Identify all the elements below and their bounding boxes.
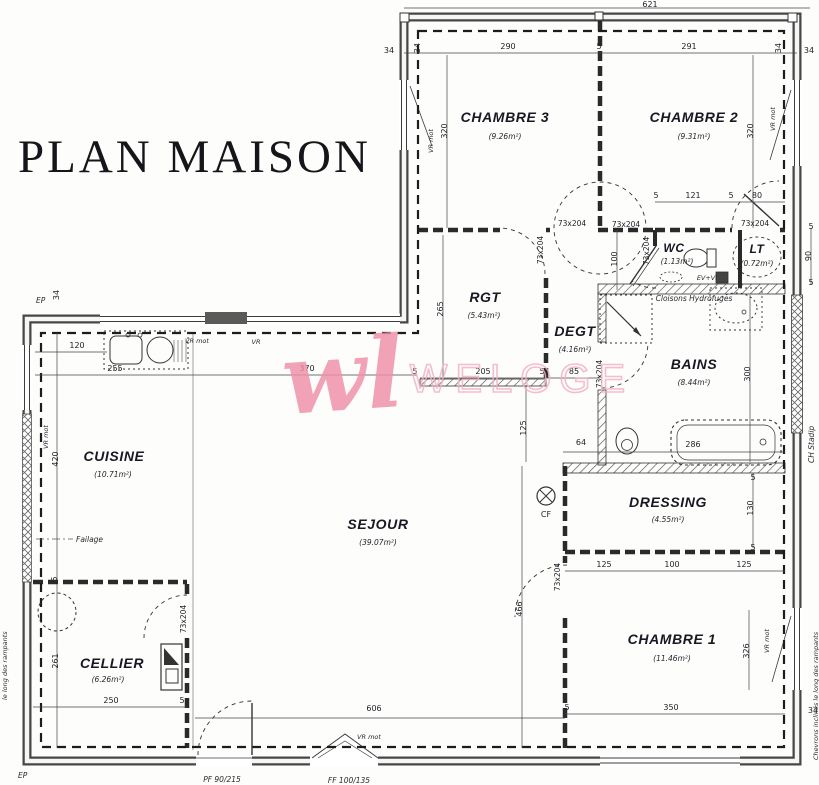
room-area: (10.71m²) [94,470,132,479]
dim-label: 5 [564,703,569,712]
vr-mot-label: VR mot [763,629,771,653]
dim-label: 5 [808,278,813,287]
door-size-label: 73x204 [558,219,587,228]
vr-label: VR [252,338,261,346]
ff-window-label: FF 100/135 [328,776,370,785]
dim-label: 5 [750,543,755,552]
exterior-walls [27,17,797,761]
dim-label: 5 [653,191,658,200]
room-label: DEGT [554,323,596,339]
floor-plan-page: PLAN MAISON [0,0,819,785]
cf-symbol [537,487,555,505]
dim-label: 320 [440,123,449,138]
room-area: (39.07m²) [359,538,397,547]
dim-label: 5 [596,42,601,51]
room-label: CELLIER [80,655,144,671]
dim-label: 5 [750,473,755,482]
door-size-label: 73x204 [179,605,188,634]
dim-label: 261 [51,653,60,668]
room-label: BAINS [671,356,718,372]
door-size-label: 73x204 [595,360,604,389]
door-size-label: 73x204 [553,563,562,592]
dim-label: 121 [685,191,700,200]
dim-label: 90 [804,251,813,261]
dim-label: 250 [103,696,118,705]
dim-label: 350 [663,703,678,712]
dim-label: 5 [179,696,184,705]
evvi-label: EV+VI [697,274,717,282]
dim-label: 85 [569,367,579,376]
dim-label: 34 [413,43,422,53]
dim-label: 291 [681,42,696,51]
dim-label: 300 [743,366,752,381]
dim-label: 34 [384,46,394,55]
pf-door-label: PF 90/215 [203,775,241,784]
ep-label: EP [36,296,46,305]
room-label: CHAMBRE 3 [461,109,550,125]
dim-label: 205 [475,367,490,376]
dim-label: 5 [539,367,544,376]
room-labels: CHAMBRE 3 (9.26m²) CHAMBRE 2 (9.31m²) WC… [80,109,774,684]
vr-mot-label: VR mot [427,129,435,153]
dim-label: 34 [52,290,61,300]
floor-plan-drawing: CHAMBRE 3 (9.26m²) CHAMBRE 2 (9.31m²) WC… [0,0,819,785]
dim-label: 5 [728,191,733,200]
dim-label: 420 [51,451,60,466]
dim-label: 125 [596,560,611,569]
room-label: CHAMBRE 1 [628,631,717,647]
dim-label: 100 [610,251,619,266]
ch-stadip-label: CH Stadip [807,426,816,463]
dim-label: 5 [808,222,813,231]
vr-mot-label: VR mot [357,733,381,741]
room-area: (0.72m²) [741,259,774,268]
room-label: LT [750,242,766,256]
dim-label: 100 [664,560,679,569]
dim-label: 64 [576,438,586,447]
bathroom-fixtures [600,288,781,465]
room-label: WC [663,241,684,255]
room-area: (1.13m²) [661,257,694,266]
dim-label: 5 [50,576,59,581]
room-label: SEJOUR [347,516,408,532]
dim-label: 125 [736,560,751,569]
dim-label: 34 [804,46,814,55]
room-area: (6.26m²) [92,675,125,684]
dim-label: 80 [752,191,762,200]
dim-label: 466 [515,601,524,616]
room-area: (4.16m²) [559,345,592,354]
dim-label: 286 [685,440,700,449]
room-area: (4.55m²) [652,515,685,524]
dim-label: 265 [436,301,445,316]
cf-label: CF [541,510,552,519]
vr-mot-label: VR mot [42,425,50,449]
cloisons-hydrofuges-label: Cloisons Hydrofuges [656,294,733,303]
chevrons-note: Chevrons inclinés le long des rampants [812,631,819,760]
room-area: (5.43m²) [468,311,501,320]
ep-label: EP [18,771,28,780]
rampants-note-left: le long des rampants [1,631,9,700]
room-area: (11.46m²) [653,654,691,663]
room-area: (9.26m²) [489,132,522,141]
dim-label: 606 [366,704,381,713]
room-area: (9.31m²) [678,132,711,141]
room-label: RGT [469,289,501,305]
dim-label: 130 [746,500,755,515]
door-size-label: 73x204 [612,220,641,229]
dim-label: 370 [299,364,314,373]
room-label: CHAMBRE 2 [650,109,739,125]
vr-mot-label: VR mot [769,107,777,131]
dim-label: 34 [774,43,783,53]
dim-label: 621 [642,0,657,9]
dim-label: 125 [519,420,528,435]
dim-label: 320 [746,123,755,138]
dim-label: 326 [742,643,751,658]
dim-label: 120 [69,341,84,350]
door-size-label: 73x204 [642,237,651,266]
dim-label: 5 [412,367,417,376]
faitage-label: Failage [76,535,103,544]
dim-label: 255 [107,364,122,373]
room-label: CUISINE [84,448,145,464]
room-area: (8.44m²) [678,378,711,387]
vr-mot-label: VR mot [185,337,209,345]
door-size-label: 73x204 [741,219,770,228]
room-label: DRESSING [629,494,707,510]
door-size-label: 73x204 [536,236,545,265]
dim-label: 290 [500,42,515,51]
